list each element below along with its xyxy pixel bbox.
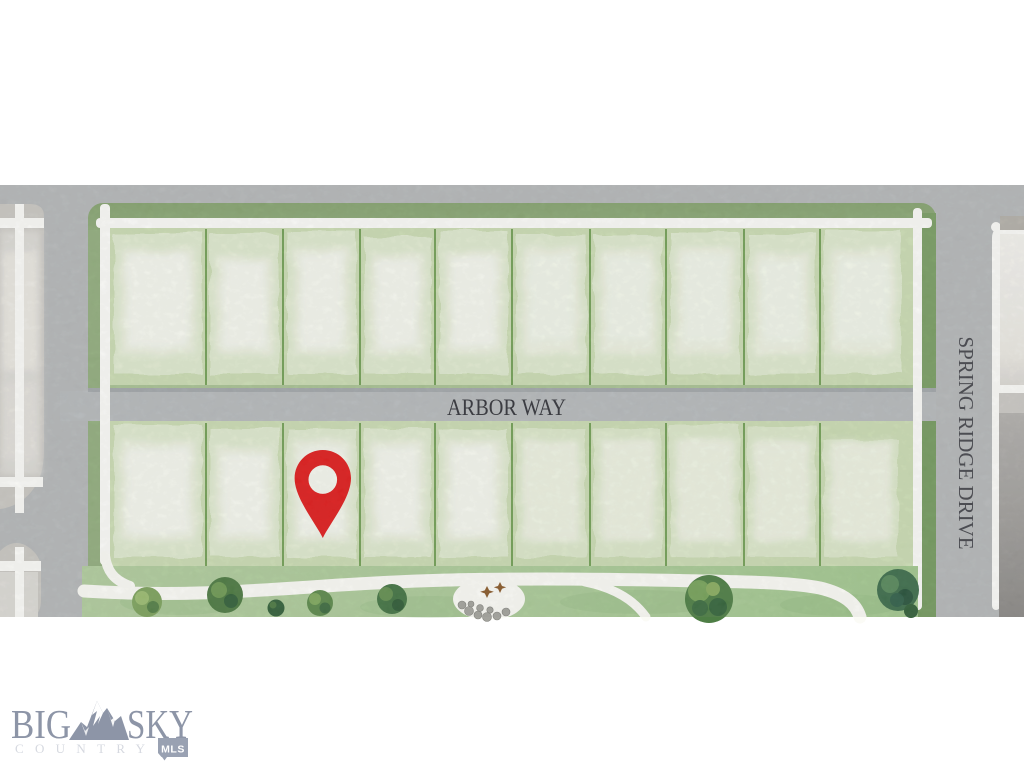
- svg-text:MLS: MLS: [161, 744, 185, 756]
